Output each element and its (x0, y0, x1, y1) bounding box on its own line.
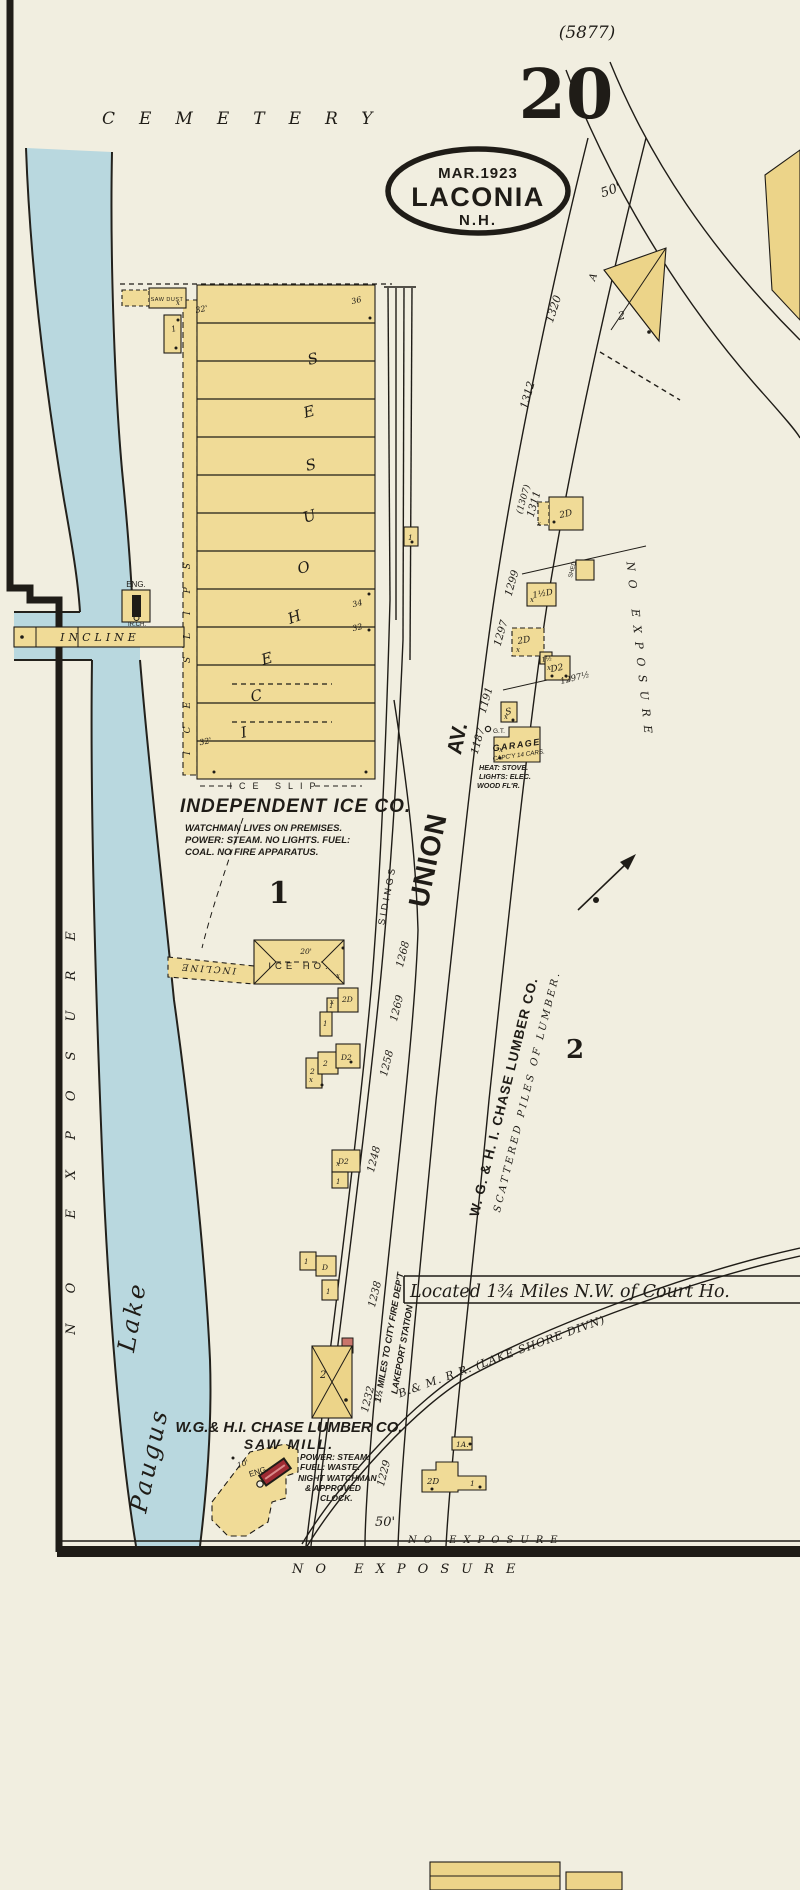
no-exposure-right: NO EXPOSURE (623, 560, 655, 742)
svg-text:x: x (330, 998, 334, 1006)
num-1269: 1269 (388, 994, 406, 1023)
mill-boiler-end (257, 1481, 263, 1487)
cluster-b3-label: D2 (340, 1053, 352, 1062)
svg-text:x: x (530, 596, 534, 604)
house-1229-wing-label: 1 (470, 1479, 475, 1488)
svg-text:x: x (336, 1160, 340, 1168)
num-1268: 1268 (394, 940, 412, 969)
stamp-date: MAR.1923 (438, 165, 518, 182)
district-2: 2 (566, 1035, 584, 1065)
cluster-c2-label: 1 (336, 1178, 340, 1186)
gas-tank-label: G.T. (493, 728, 505, 735)
mill-note-4: & APPROVED (305, 1483, 361, 1493)
ice-slip-label: ICE SLIP (229, 781, 322, 791)
saw-mill-building (212, 1444, 298, 1536)
garage-heat: HEAT: STOVE. (479, 763, 528, 772)
compass-needle-line (578, 862, 628, 910)
dim-50-bottom: 50' (375, 1515, 395, 1530)
plate-ref: (5877) (559, 23, 616, 43)
cluster-d3-label: 1 (326, 1288, 330, 1296)
railroad-label: B.& M. R.R. (LAKE SHORE DIVN) (396, 1313, 608, 1401)
svg-text:x: x (499, 746, 503, 754)
garage-floor: WOOD FL'R. (477, 781, 520, 790)
stamp-state: N.H. (459, 212, 497, 229)
saw-dust-annex (122, 290, 149, 306)
rr-track-3 (403, 288, 404, 640)
ice-houses-block (197, 285, 375, 779)
district-1: 1 (269, 876, 290, 911)
num-1248: 1248 (365, 1145, 383, 1174)
compass-dot (593, 897, 599, 903)
iron-chimney-label: IR.CH. (128, 622, 146, 628)
shed-building (576, 560, 594, 580)
cluster-b1-label: 2 (309, 1067, 315, 1076)
cluster-a1-label: 2D (341, 995, 353, 1004)
independent-ice-co: INDEPENDENT ICE CO. (180, 796, 411, 817)
cluster-d1-label: 1 (304, 1258, 308, 1266)
sawmill-sub: SAW MILL. (244, 1436, 334, 1452)
sawmill-name: W.G.& H.I. CHASE LUMBER CO. (175, 1419, 402, 1436)
compass (578, 854, 636, 910)
eng-label: ENG. (126, 580, 146, 589)
bottom-border-bar (57, 1546, 800, 1557)
cluster-b-bldg2 (318, 1052, 338, 1074)
svg-text:x: x (537, 520, 541, 528)
lot-dashed-line (600, 352, 680, 400)
num-1297: 1297 (492, 618, 511, 647)
building-1a-label: 1A. (456, 1440, 469, 1449)
rr-track-4 (410, 288, 412, 660)
mill-note-5: CLOCK. (320, 1493, 353, 1503)
mill-note-1: POWER: STEAM. (300, 1452, 369, 1462)
svg-text:x: x (547, 664, 551, 672)
garage-lights: LIGHTS: ELEC. (479, 772, 531, 781)
num-1187: 1187 (469, 726, 488, 755)
partial-building-2 (566, 1872, 622, 1890)
house-1229-label: 2D (426, 1477, 439, 1487)
num-1191: 1191 (477, 686, 496, 715)
sanborn-map-sheet: MAR.1923 LACONIA N.H. (5877) 20 CEMETERY… (0, 0, 800, 1890)
cluster-d2-label: D (321, 1263, 328, 1272)
num-1258: 1258 (378, 1049, 396, 1078)
mill-note-3: NIGHT WATCHMAN (298, 1473, 378, 1483)
svg-text:x: x (516, 646, 520, 654)
no-exposure-bottom-small: NO EXPOSURE (407, 1535, 565, 1546)
ice-note-2: POWER: STEAM. NO LIGHTS. FUEL: (185, 835, 350, 846)
no-exposure-below-bar: NO EXPOSURE (291, 1562, 527, 1577)
mill-2-label: 2 (319, 1370, 326, 1381)
ice-note-3: COAL. NO FIRE APPARATUS. (185, 847, 318, 858)
svg-text:x: x (504, 713, 508, 721)
rr-track-1 (388, 288, 390, 600)
no-exposure-left: NO EXPOSURE (64, 901, 79, 1335)
ice-slips-label: ICE SLIPS (183, 545, 193, 756)
mill-note-2: FUEL: WASTE. (300, 1462, 360, 1472)
dim-20: 20' (299, 947, 312, 956)
svg-text:x: x (336, 972, 340, 980)
mill-building-2 (312, 1346, 352, 1418)
water-bodies (14, 148, 211, 1546)
letter-a-mark: A (587, 272, 600, 284)
bottom-edge-partials (430, 1862, 622, 1890)
ice-note-1: WATCHMAN LIVES ON PREMISES. (185, 823, 342, 834)
stamp-city: LACONIA (411, 182, 545, 212)
boiler-block (132, 595, 141, 617)
svg-text:x: x (309, 1076, 313, 1084)
map-canvas: MAR.1923 LACONIA N.H. (5877) 20 CEMETERY… (0, 0, 800, 1890)
edge-building-topright (765, 150, 800, 320)
num-1229: 1229 (375, 1459, 393, 1488)
sheet-number: 20 (519, 55, 614, 135)
svg-text:x: x (176, 299, 180, 307)
num-1238: 1238 (366, 1280, 384, 1309)
num-1299: 1299 (503, 568, 522, 597)
incline-label: INCLINE (59, 631, 140, 644)
located-note: Located 1¾ Miles N.W. of Court Ho. (409, 1282, 730, 1302)
num-1312: 1312 (518, 380, 538, 410)
union-av-label: AV. (443, 721, 472, 757)
cemetery-label: CEMETERY (102, 109, 396, 129)
cluster-b2-label: 2 (322, 1059, 328, 1068)
ice-ho-label: ICE HO. (268, 961, 331, 972)
num-1320: 1320 (543, 294, 564, 325)
dim-50-top: 50' (599, 180, 623, 201)
title-stamp: MAR.1923 LACONIA N.H. (388, 149, 568, 233)
cluster-a3-label: 1 (323, 1020, 327, 1028)
